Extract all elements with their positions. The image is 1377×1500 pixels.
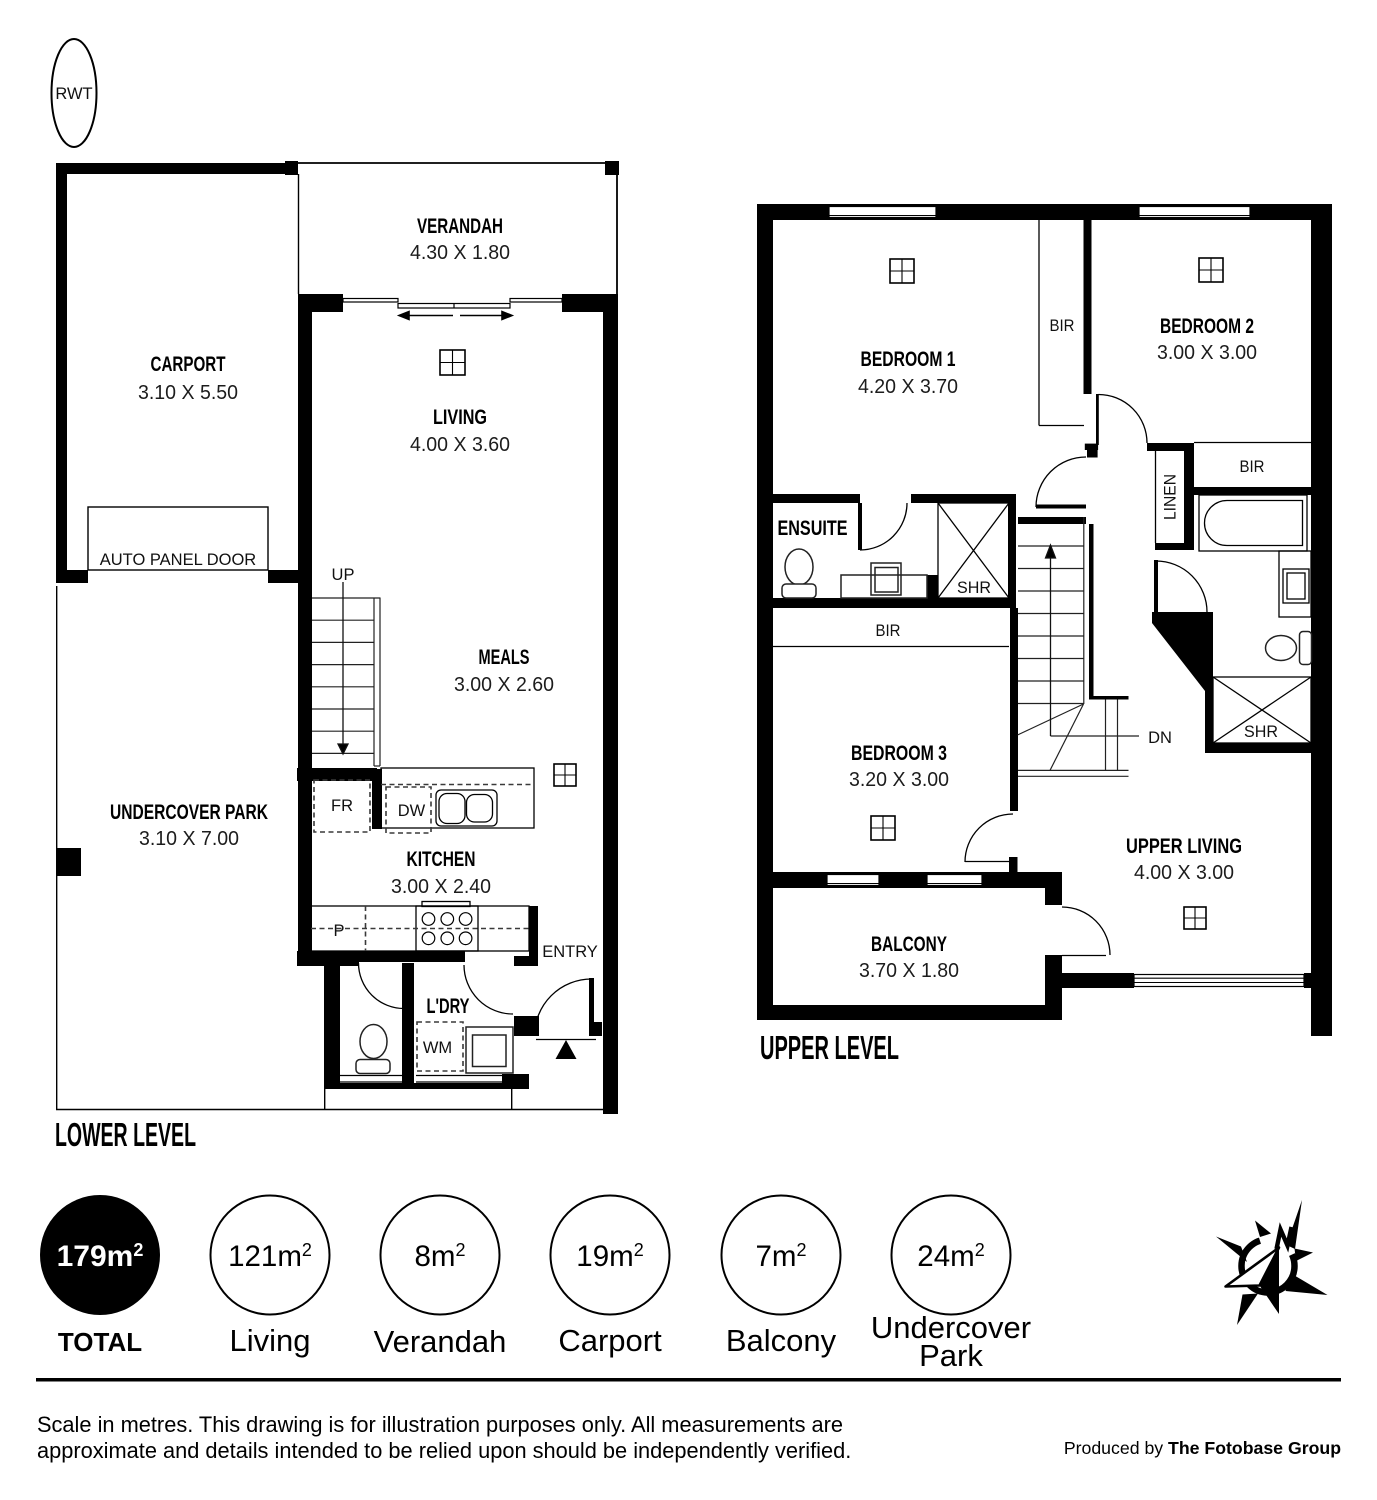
svg-text:179m2: 179m2 — [57, 1240, 144, 1273]
svg-text:Park: Park — [919, 1338, 983, 1373]
svg-text:121m2: 121m2 — [228, 1240, 312, 1273]
svg-text:Scale in metres. This drawing: Scale in metres. This drawing is for ill… — [37, 1412, 843, 1437]
svg-text:WM: WM — [423, 1039, 452, 1057]
svg-text:RWT: RWT — [55, 85, 92, 103]
svg-text:3.10 X 7.00: 3.10 X 7.00 — [139, 828, 239, 850]
svg-text:LOWER LEVEL: LOWER LEVEL — [55, 1116, 196, 1153]
svg-text:UNDERCOVER PARK: UNDERCOVER PARK — [110, 800, 268, 824]
svg-text:24m2: 24m2 — [917, 1240, 984, 1273]
svg-text:BIR: BIR — [1050, 317, 1075, 335]
svg-text:CARPORT: CARPORT — [151, 352, 226, 376]
svg-text:BEDROOM 3: BEDROOM 3 — [851, 741, 947, 765]
svg-text:Balcony: Balcony — [726, 1323, 837, 1358]
svg-text:BALCONY: BALCONY — [871, 932, 947, 956]
svg-text:UPPER LEVEL: UPPER LEVEL — [760, 1029, 899, 1066]
svg-text:LIVING: LIVING — [433, 405, 487, 429]
svg-text:DN: DN — [1148, 729, 1172, 747]
svg-text:3.10 X 5.50: 3.10 X 5.50 — [138, 382, 238, 404]
svg-text:LINEN: LINEN — [1162, 474, 1180, 520]
svg-text:SHR: SHR — [957, 579, 991, 597]
svg-text:P: P — [333, 922, 344, 940]
svg-text:AUTO PANEL DOOR: AUTO PANEL DOOR — [100, 551, 257, 569]
svg-text:Carport: Carport — [558, 1323, 662, 1358]
svg-text:Living: Living — [230, 1323, 311, 1358]
svg-text:4.30 X 1.80: 4.30 X 1.80 — [410, 242, 510, 264]
svg-text:FR: FR — [331, 797, 353, 815]
svg-text:UPPER LIVING: UPPER LIVING — [1126, 834, 1242, 858]
svg-text:BEDROOM 2: BEDROOM 2 — [1160, 314, 1254, 338]
svg-text:3.00 X 2.60: 3.00 X 2.60 — [454, 674, 554, 696]
svg-text:ENTRY: ENTRY — [542, 943, 598, 961]
svg-text:L'DRY: L'DRY — [427, 994, 470, 1018]
svg-text:3.00 X 3.00: 3.00 X 3.00 — [1157, 342, 1257, 364]
svg-text:TOTAL: TOTAL — [58, 1327, 142, 1357]
svg-text:Verandah: Verandah — [374, 1324, 507, 1359]
svg-text:SHR: SHR — [1244, 723, 1278, 741]
svg-text:BEDROOM 1: BEDROOM 1 — [861, 347, 956, 371]
svg-text:19m2: 19m2 — [576, 1240, 643, 1273]
svg-text:KITCHEN: KITCHEN — [407, 847, 476, 871]
svg-text:ENSUITE: ENSUITE — [778, 516, 848, 540]
svg-text:MEALS: MEALS — [479, 645, 530, 669]
svg-text:DW: DW — [398, 802, 426, 820]
svg-text:4.00 X 3.60: 4.00 X 3.60 — [410, 434, 510, 456]
svg-text:3.70 X 1.80: 3.70 X 1.80 — [859, 960, 959, 982]
svg-text:3.20 X 3.00: 3.20 X 3.00 — [849, 769, 949, 791]
svg-text:BIR: BIR — [1240, 458, 1265, 476]
svg-text:BIR: BIR — [876, 622, 901, 640]
svg-text:approximate and details intend: approximate and details intended to be r… — [37, 1438, 851, 1463]
svg-text:3.00 X 2.40: 3.00 X 2.40 — [391, 876, 491, 898]
svg-text:UP: UP — [332, 566, 355, 584]
svg-text:Produced by The Fotobase Group: Produced by The Fotobase Group — [1064, 1438, 1341, 1458]
svg-text:4.20 X 3.70: 4.20 X 3.70 — [858, 376, 958, 398]
svg-text:4.00 X 3.00: 4.00 X 3.00 — [1134, 862, 1234, 884]
svg-text:VERANDAH: VERANDAH — [417, 214, 503, 238]
